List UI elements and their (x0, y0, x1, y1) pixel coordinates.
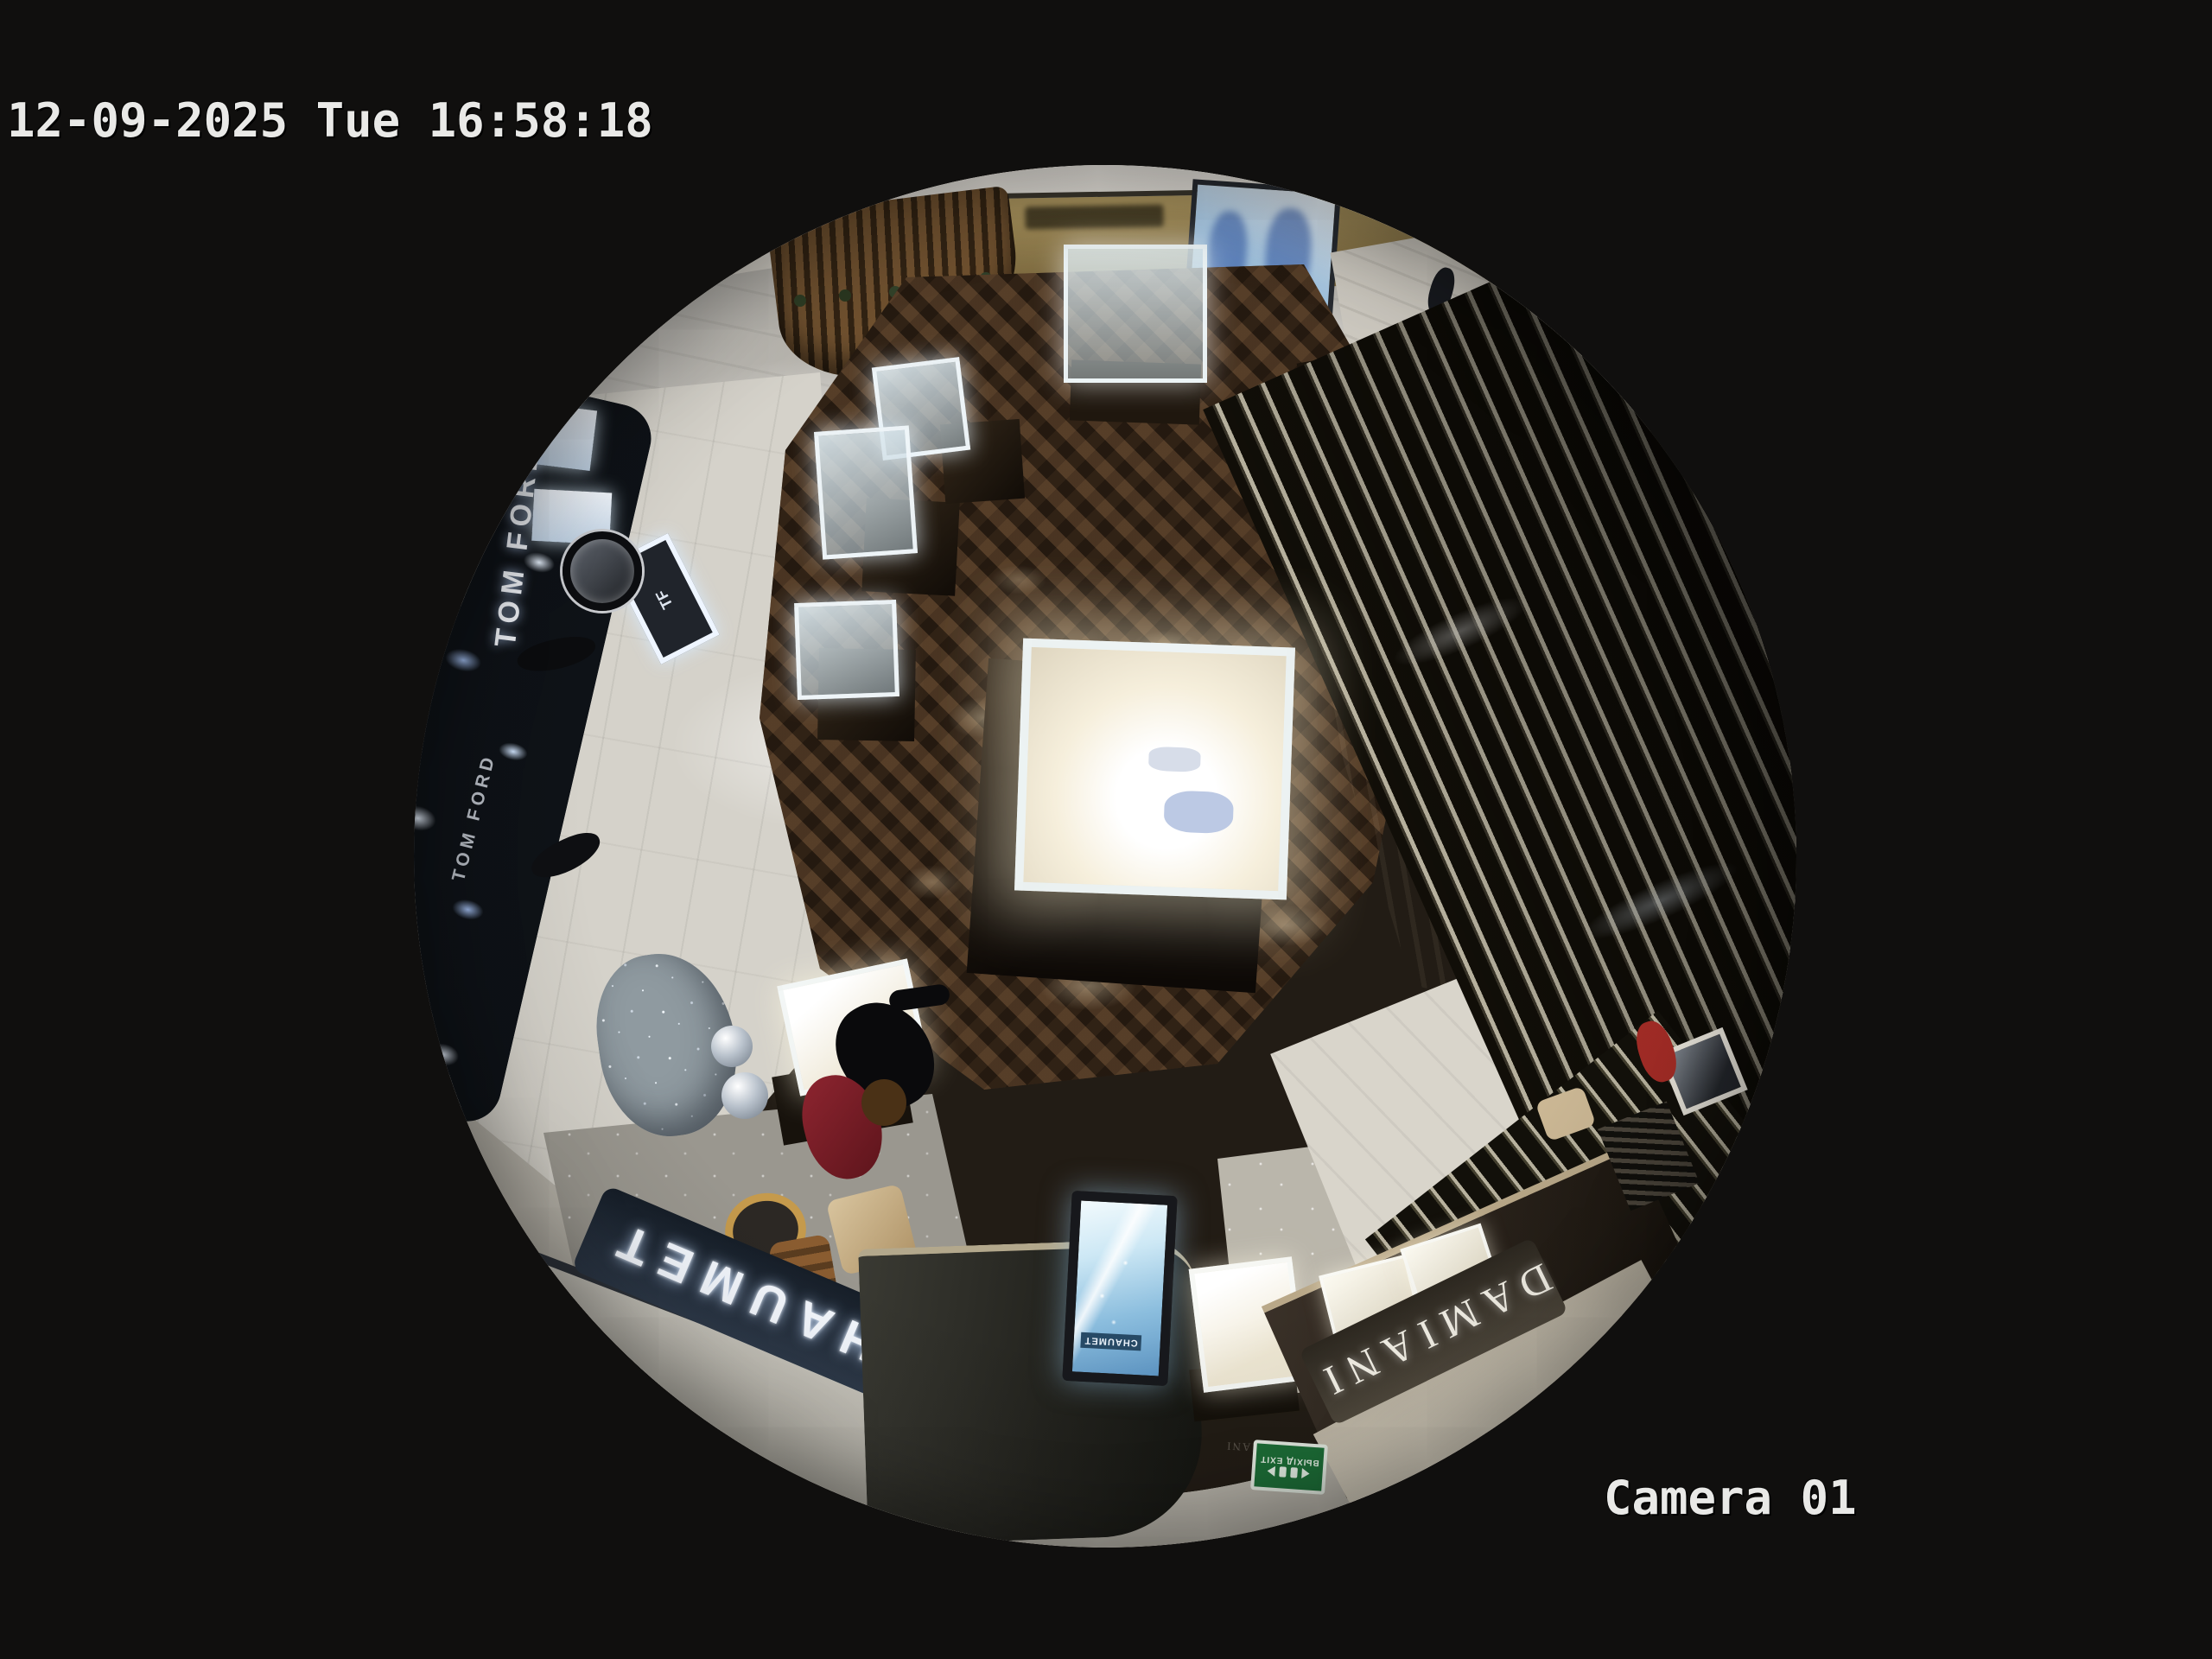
osd-camera-label: Camera 01 (1604, 1471, 1857, 1525)
osd-timestamp: 12-09-2025 Tue 16:58:18 (7, 93, 653, 148)
fisheye-vignette (414, 165, 1796, 1548)
fisheye-camera-view: TOM FORD TOM FORD TF CHAUMET CHAUMET CHA… (414, 165, 1796, 1548)
cctv-frame: 12-09-2025 Tue 16:58:18 (0, 0, 2212, 1659)
